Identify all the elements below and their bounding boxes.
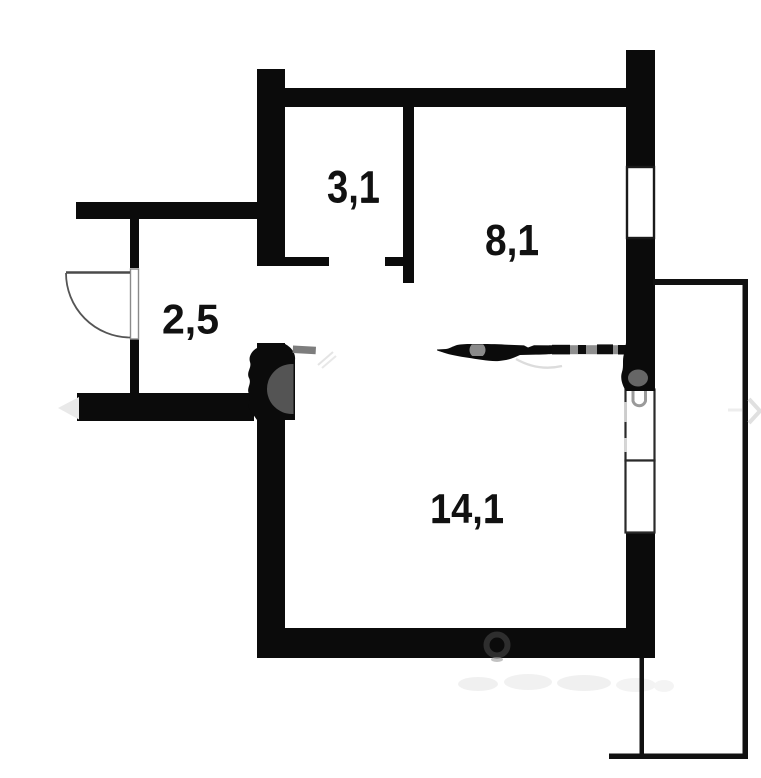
svg-text:3,1: 3,1 bbox=[327, 162, 380, 213]
svg-text:14,1: 14,1 bbox=[430, 485, 504, 532]
svg-text:8,1: 8,1 bbox=[485, 217, 539, 265]
svg-text:2,5: 2,5 bbox=[162, 296, 219, 343]
